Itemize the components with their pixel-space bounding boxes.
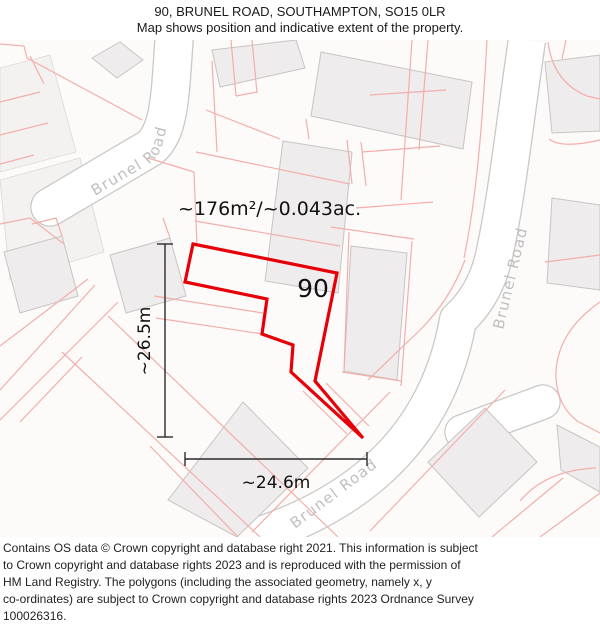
- page-title: 90, BRUNEL ROAD, SOUTHAMPTON, SO15 0LR: [0, 0, 600, 20]
- footer-line: 100026316.: [3, 608, 600, 625]
- footer-line: Contains OS data © Crown copyright and d…: [3, 540, 600, 557]
- page-subtitle: Map shows position and indicative extent…: [0, 20, 600, 36]
- page: 90, BRUNEL ROAD, SOUTHAMPTON, SO15 0LR M…: [0, 0, 600, 625]
- plot-number-label: 90: [297, 274, 329, 303]
- area-label: ~176m²/~0.043ac.: [178, 198, 361, 220]
- copyright-footer: Contains OS data © Crown copyright and d…: [0, 537, 600, 625]
- building: [545, 55, 600, 133]
- footer-line: HM Land Registry. The polygons (includin…: [3, 574, 600, 591]
- building: [344, 246, 407, 380]
- building: [547, 198, 600, 290]
- dimension-label-horizontal: ~24.6m: [242, 473, 311, 493]
- footer-line: co-ordinates) are subject to Crown copyr…: [3, 591, 600, 608]
- dimension-label-vertical: ~26.5m: [135, 307, 155, 376]
- footer-line: to Crown copyright and database rights 2…: [3, 557, 600, 574]
- header: 90, BRUNEL ROAD, SOUTHAMPTON, SO15 0LR M…: [0, 0, 600, 40]
- map-canvas: Brunel RoadBrunel RoadBrunel Road~26.5m~…: [0, 40, 600, 537]
- property-map: Brunel RoadBrunel RoadBrunel Road~26.5m~…: [0, 40, 600, 537]
